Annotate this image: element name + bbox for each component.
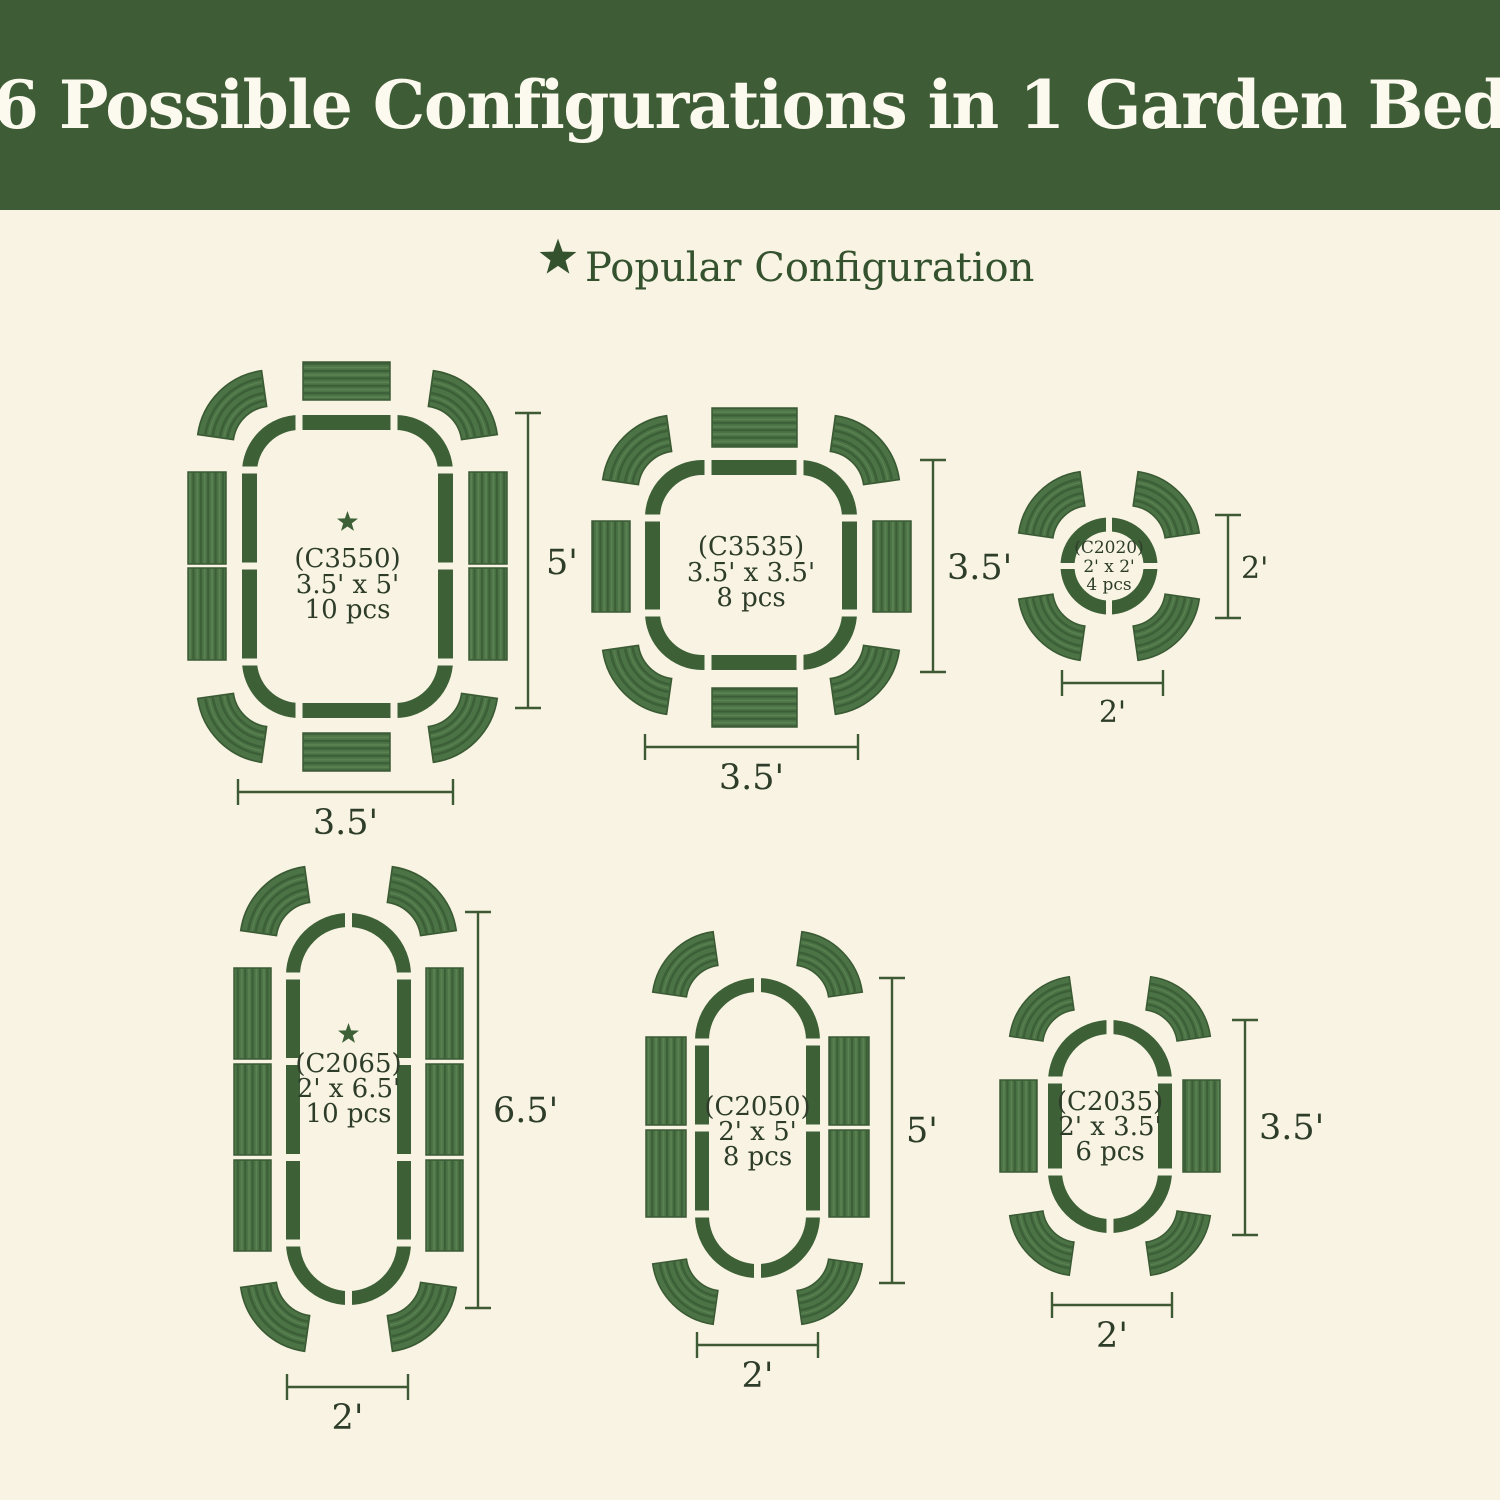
height-dimension (879, 978, 905, 1283)
straight-panel (188, 472, 226, 564)
config-c2035-diagram: (C2035) 2' x 3.5' 6 pcs 3.5' 2' (1000, 977, 1324, 1356)
width-dimension-label: 3.5' (313, 803, 378, 843)
straight-panel (873, 521, 911, 612)
config-code: (C2020) (1074, 538, 1144, 558)
corner-panel (797, 932, 862, 997)
legend-label: Popular Configuration (585, 245, 1034, 291)
popular-star-icon (338, 1023, 359, 1043)
height-dimension (515, 413, 541, 708)
config-pieces: 6 pcs (1075, 1137, 1144, 1167)
corner-panel (653, 1259, 718, 1324)
corner-panel (198, 371, 267, 440)
config-pieces: 4 pcs (1086, 575, 1131, 595)
width-dimension-label: 2' (1099, 695, 1126, 730)
height-dimension-label: 3.5' (947, 548, 1012, 588)
straight-panel (469, 472, 507, 564)
config-size: 2' x 2' (1083, 557, 1134, 577)
config-pieces: 10 pcs (306, 1099, 392, 1129)
height-dimension (465, 912, 491, 1308)
width-dimension (1052, 1292, 1172, 1318)
straight-panel (646, 1037, 686, 1125)
straight-panel (829, 1037, 869, 1125)
corner-panel (653, 932, 718, 997)
width-dimension (238, 779, 453, 805)
straight-panel (234, 1160, 271, 1251)
straight-panel (426, 968, 463, 1059)
config-pieces: 10 pcs (305, 595, 391, 625)
height-dimension-label: 2' (1241, 551, 1268, 586)
straight-panel (592, 521, 630, 612)
config-c2020-diagram: (C2020) 2' x 2' 4 pcs 2' 2' (1019, 472, 1269, 730)
corner-panel (1146, 1211, 1210, 1275)
height-dimension-label: 5' (546, 543, 578, 583)
width-dimension-label: 2' (742, 1356, 774, 1396)
corner-panel (1146, 977, 1210, 1041)
config-c3550-diagram: (C3550) 3.5' x 5' 10 pcs 5' 3.5' (188, 362, 578, 843)
height-dimension (920, 460, 946, 672)
height-dimension-label: 3.5' (1259, 1108, 1324, 1148)
star-icon (540, 239, 577, 274)
straight-panel (426, 1064, 463, 1155)
width-dimension (1062, 670, 1163, 696)
corner-panel (1010, 977, 1074, 1041)
straight-panel (712, 688, 797, 727)
width-dimension (645, 734, 858, 760)
corner-panel (1133, 472, 1199, 538)
config-pieces: 8 pcs (723, 1142, 792, 1172)
corner-panel (428, 371, 497, 440)
straight-panel (712, 408, 797, 447)
straight-panel (469, 568, 507, 660)
corner-panel (1133, 594, 1199, 660)
corner-panel (198, 693, 267, 762)
corner-panel (830, 416, 899, 485)
corner-panel (387, 867, 456, 936)
straight-panel (1000, 1080, 1037, 1172)
width-dimension-label: 3.5' (719, 758, 784, 798)
config-c2050-diagram: (C2050) 2' x 5' 8 pcs 5' 2' (646, 932, 938, 1396)
corner-panel (241, 1282, 310, 1351)
width-dimension (697, 1332, 818, 1358)
legend: Popular Configuration (540, 239, 1035, 291)
corner-panel (428, 693, 497, 762)
corner-panel (603, 645, 672, 714)
straight-panel (829, 1130, 869, 1217)
corner-panel (797, 1259, 862, 1324)
config-c2065-diagram: (C2065) 2' x 6.5' 10 pcs 6.5' 2' (234, 867, 558, 1438)
straight-panel (303, 733, 390, 771)
straight-panel (1183, 1080, 1220, 1172)
corner-panel (1010, 1211, 1074, 1275)
width-dimension-label: 2' (332, 1398, 364, 1438)
height-dimension (1232, 1020, 1258, 1235)
corner-panel (387, 1282, 456, 1351)
width-dimension-label: 2' (1096, 1316, 1128, 1356)
width-dimension (287, 1374, 408, 1400)
height-dimension (1215, 515, 1241, 618)
straight-panel (646, 1130, 686, 1217)
straight-panel (188, 568, 226, 660)
height-dimension-label: 6.5' (493, 1091, 558, 1131)
straight-panel (234, 1064, 271, 1155)
corner-panel (830, 645, 899, 714)
corner-panel (1019, 594, 1085, 660)
corner-panel (603, 416, 672, 485)
config-pieces: 8 pcs (716, 583, 785, 613)
straight-panel (303, 362, 390, 400)
straight-panel (234, 968, 271, 1059)
corner-panel (241, 867, 310, 936)
diagram-canvas: Popular Configuration (0, 0, 1500, 1500)
height-dimension-label: 5' (906, 1111, 938, 1151)
popular-star-icon (337, 511, 358, 531)
corner-panel (1019, 472, 1085, 538)
config-c3535-diagram: (C3535) 3.5' x 3.5' 8 pcs 3.5' 3.5' (592, 408, 1012, 798)
straight-panel (426, 1160, 463, 1251)
